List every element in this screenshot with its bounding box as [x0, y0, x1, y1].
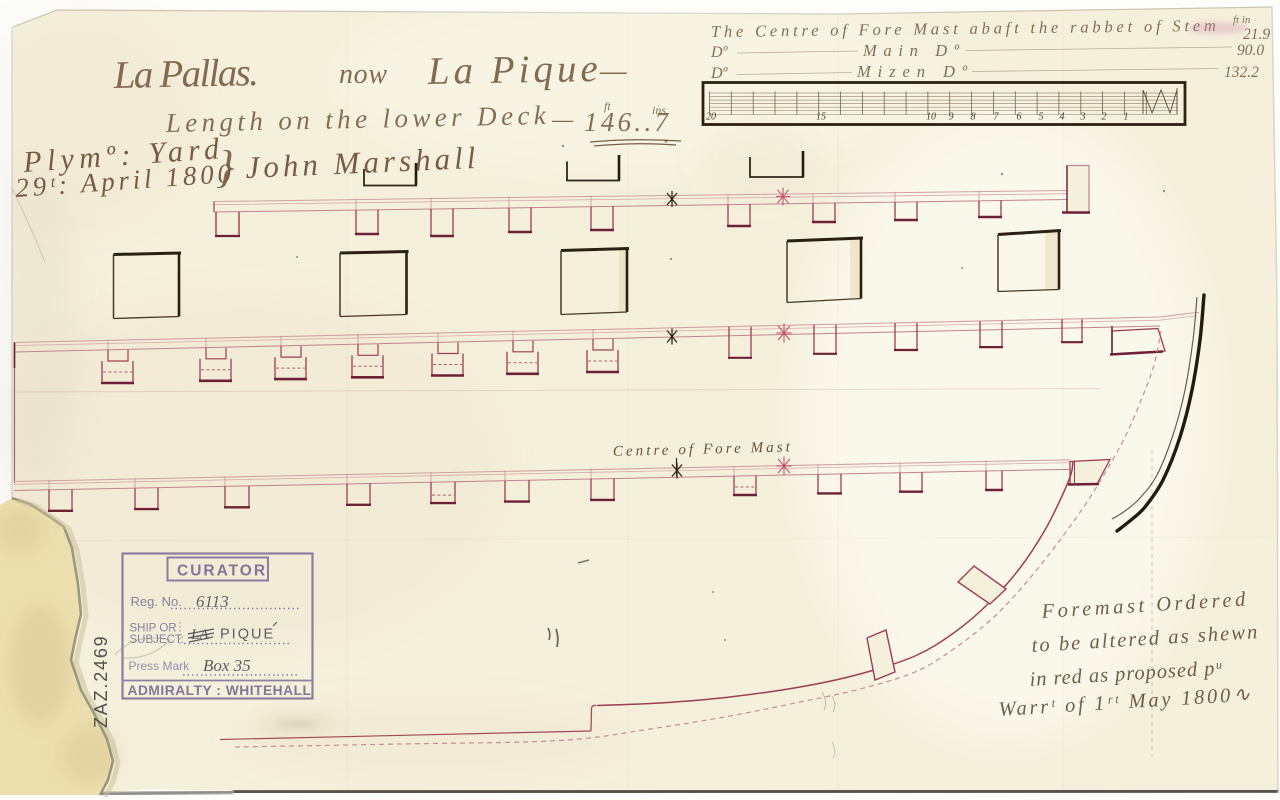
svg-text:Dº: Dº: [710, 65, 729, 82]
svg-text:PIQUE: PIQUE: [220, 627, 275, 643]
svg-text:1: 1: [1124, 112, 1129, 123]
svg-text:ft: ft: [604, 99, 611, 113]
svg-text:}: }: [216, 141, 234, 192]
svg-text:2: 2: [1102, 112, 1107, 123]
svg-text:5: 5: [1039, 112, 1044, 123]
svg-text:4: 4: [1060, 112, 1065, 123]
svg-text:—: —: [551, 107, 574, 133]
svg-text:Dº: Dº: [710, 44, 729, 61]
svg-text:SHIP OR: SHIP OR: [130, 623, 177, 635]
svg-text:Main Dº: Main Dº: [862, 41, 960, 60]
svg-text:132.2: 132.2: [1224, 64, 1259, 81]
svg-text:ZAZ.2469: ZAZ.2469: [91, 635, 111, 728]
svg-text:6113: 6113: [196, 592, 229, 611]
svg-text:9: 9: [949, 112, 954, 123]
svg-text:now: now: [339, 59, 387, 90]
svg-text:ins: ins: [652, 103, 666, 117]
svg-text:15: 15: [816, 112, 826, 123]
svg-text:Reg. No.: Reg. No.: [131, 594, 182, 609]
svg-text:CURATOR: CURATOR: [177, 563, 267, 580]
svg-text:La Pallas.: La Pallas.: [112, 51, 259, 97]
svg-text:8: 8: [971, 112, 976, 123]
svg-text:90.0: 90.0: [1237, 42, 1264, 59]
svg-text:Press Mark: Press Mark: [129, 659, 191, 673]
svg-text:10: 10: [926, 112, 936, 123]
svg-text:6: 6: [1017, 112, 1022, 123]
svg-text:20: 20: [706, 112, 716, 123]
svg-text:ADMIRALTY : WHITEHALL: ADMIRALTY : WHITEHALL: [128, 683, 312, 698]
svg-text:3: 3: [1080, 112, 1086, 123]
svg-text:—: —: [599, 54, 627, 87]
svg-text:Box 35: Box 35: [203, 656, 251, 675]
